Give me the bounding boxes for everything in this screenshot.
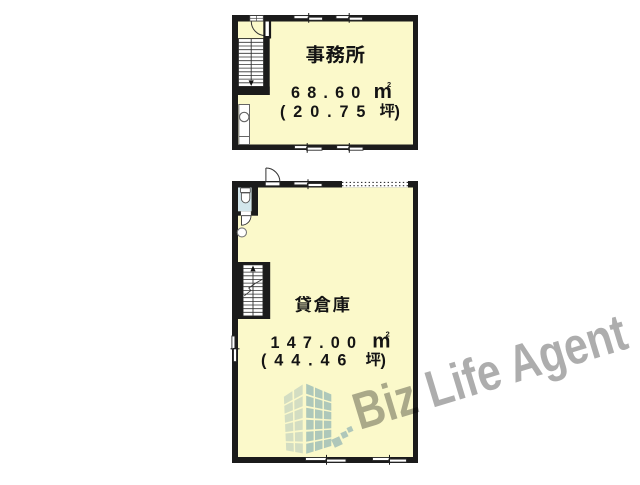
- svg-text:68.60: 68.60: [291, 84, 368, 102]
- svg-text:(20.75: (20.75: [280, 103, 373, 121]
- svg-text:147.00: 147.00: [271, 334, 364, 352]
- svg-text:(44.46: (44.46: [261, 352, 354, 370]
- svg-text:2: 2: [387, 80, 391, 89]
- svg-text:): ): [395, 103, 400, 121]
- svg-text:2: 2: [386, 330, 390, 339]
- svg-text:): ): [381, 352, 386, 370]
